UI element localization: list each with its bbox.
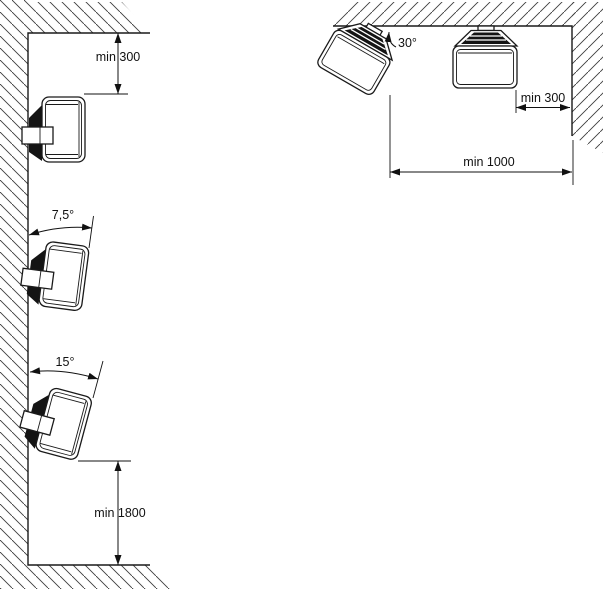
dim-ceiling-tilt: 30° (389, 32, 417, 50)
right-ceiling-hatch (333, 2, 575, 26)
left-floor-hatch (28, 565, 174, 589)
wall-speaker-straight (22, 97, 85, 162)
dim-ceiling-side-clearance: min 300 (516, 90, 570, 113)
label-ceiling-side-clearance: min 300 (521, 91, 566, 105)
dim-wall-bottom-clearance: min 1800 (78, 461, 146, 565)
label-ceiling-corner-clearance: min 1000 (463, 155, 514, 169)
label-ceiling-tilt: 30° (398, 36, 417, 50)
ceiling-mounting-panel: 30° min 300 min 1000 (316, 2, 603, 185)
installation-diagram-page: min 300 7,5° 15° min 1800 (0, 0, 608, 589)
left-wall-hatch (0, 0, 28, 589)
wall-mounting-panel: min 300 7,5° 15° min 1800 (0, 0, 174, 589)
label-tilt-7-5: 7,5° (52, 208, 74, 222)
dim-ceiling-corner-clearance: min 1000 (390, 95, 573, 185)
label-wall-top-clearance: min 300 (96, 50, 141, 64)
installation-diagram: min 300 7,5° 15° min 1800 (0, 0, 608, 589)
dim-tilt-7-5: 7,5° (29, 208, 94, 248)
dim-wall-top-clearance: min 300 (84, 33, 140, 94)
right-wall-hatch (572, 2, 603, 153)
wall-speaker-7-5deg (19, 239, 90, 312)
left-ceiling-hatch (28, 2, 150, 33)
label-wall-bottom-clearance: min 1800 (94, 506, 145, 520)
ceiling-speaker-straight (453, 26, 517, 88)
label-tilt-15: 15° (56, 355, 75, 369)
